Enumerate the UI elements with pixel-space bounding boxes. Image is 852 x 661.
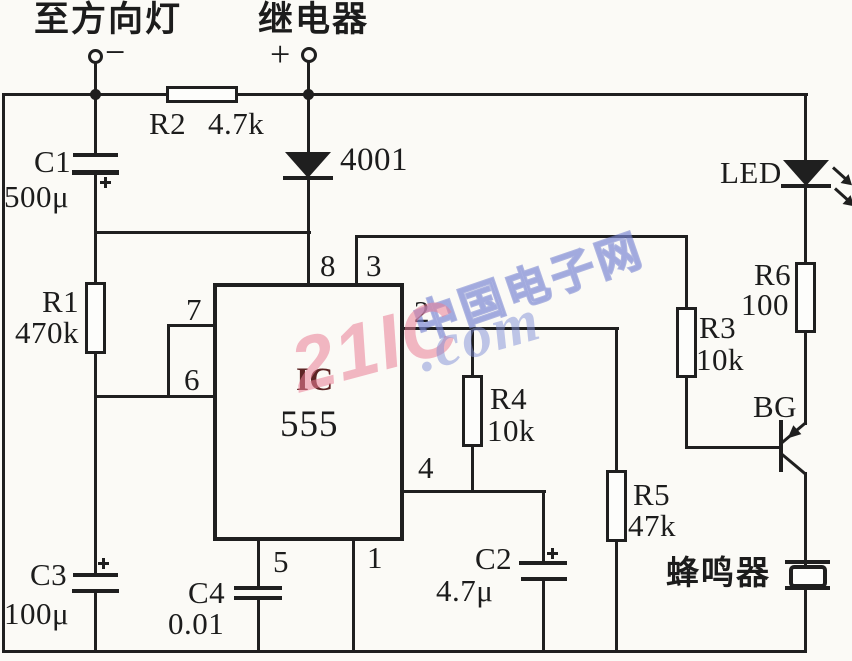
label-diode-4001: 4001 <box>340 144 408 177</box>
diode-4001-triangle <box>285 152 331 178</box>
label-transistor-bg: BG <box>753 391 797 422</box>
label-led: LED <box>720 157 782 188</box>
schematic-canvas: 至方向灯 − 继电器 + R2 4.7k 4001 C1 500μ R1 470… <box>0 0 852 661</box>
led-emission-arrow-1 <box>832 166 847 180</box>
wire-r6-emitter <box>804 331 807 425</box>
wire-base <box>685 446 783 449</box>
wire-r1-bottom-lead <box>94 352 97 397</box>
wire-r5-top-lead <box>615 327 618 472</box>
wire-buzzer-ground <box>804 589 807 652</box>
wire-r1-to-c3 <box>94 395 97 575</box>
pin-label-5: 5 <box>273 546 289 577</box>
wire-led-r6 <box>804 187 807 264</box>
label-r5-ref: R5 <box>633 479 670 510</box>
transistor-collector <box>780 452 806 475</box>
capacitor-c2-plate-top <box>519 561 567 565</box>
pin-label-8: 8 <box>320 250 336 281</box>
transistor-base-bar <box>779 420 783 472</box>
wire-c1-top-lead <box>94 95 97 155</box>
wire-c1-to-diode <box>94 231 311 234</box>
wire-pin5-stub <box>257 540 260 590</box>
relay-label: 继电器 <box>258 2 369 37</box>
wire-left-border <box>2 93 5 653</box>
pin-label-3: 3 <box>366 250 382 281</box>
wire-c2-top-lead <box>542 490 545 563</box>
led-triangle <box>783 160 829 186</box>
capacitor-c1-plate-top <box>73 153 118 157</box>
label-c2-ref: C2 <box>475 543 512 574</box>
label-c3-value: 100μ <box>4 598 69 629</box>
label-r3-value: 10k <box>696 344 744 375</box>
resistor-r2-body <box>166 86 238 103</box>
wire-pin3-stub <box>355 235 358 285</box>
label-r2-value: 4.7k <box>208 108 264 139</box>
minus-polarity-label: − <box>105 34 126 70</box>
wire-top-rail <box>2 93 808 96</box>
diode-4001-cathode-bar <box>283 176 333 180</box>
wire-pin1-ground <box>352 540 355 652</box>
wire-c4-ground <box>257 599 260 652</box>
wire-r3-bottom-lead <box>685 376 688 448</box>
label-c4-value: 0.01 <box>168 608 224 639</box>
wire-pin2 <box>403 327 619 330</box>
label-r4-ref: R4 <box>490 383 527 414</box>
label-c1-ref: C1 <box>34 146 71 177</box>
wire-r4-bottom-lead <box>471 445 474 493</box>
pin-label-6: 6 <box>184 364 200 395</box>
capacitor-c1-plate-bottom <box>72 170 119 175</box>
resistor-r5-body <box>606 470 627 542</box>
label-c1-value: 500μ <box>4 181 69 212</box>
wire-pin7-down <box>167 324 170 398</box>
label-r1-ref: R1 <box>42 286 79 317</box>
buzzer-plate-bottom <box>785 586 830 590</box>
c3-polarity-mark <box>98 558 109 569</box>
wire-bottom-rail <box>2 650 807 653</box>
resistor-r6-body <box>795 262 816 333</box>
label-r5-value: 47k <box>628 510 676 541</box>
pin-label-1: 1 <box>367 542 383 573</box>
buzzer-body <box>789 565 827 588</box>
wire-terminal-plus-stem <box>307 61 310 153</box>
terminal-direction-light <box>88 49 103 64</box>
pin-label-7: 7 <box>186 294 202 325</box>
capacitor-c3-plate-top <box>73 573 118 577</box>
wire-r1-top-lead <box>94 231 97 284</box>
wire-pin4 <box>403 490 546 493</box>
led-cathode-bar <box>781 184 831 188</box>
junction-dot-left <box>90 89 101 100</box>
wire-diode-to-pin8 <box>307 178 310 285</box>
plus-polarity-label: + <box>270 36 291 72</box>
label-c3-ref: C3 <box>30 559 67 590</box>
wire-led-top <box>804 93 807 162</box>
label-r2-ref: R2 <box>149 108 186 139</box>
resistor-r3-body <box>676 307 697 378</box>
capacitor-c4-plate-top <box>234 586 282 590</box>
resistor-r1-body <box>85 282 106 354</box>
pin-label-4: 4 <box>418 452 434 483</box>
wire-c2-ground <box>542 580 545 652</box>
resistor-r4-body <box>462 375 483 447</box>
capacitor-c4-plate-bottom <box>234 596 282 600</box>
wire-pin3-to-r3 <box>355 235 688 238</box>
wire-r5-ground <box>615 541 618 652</box>
wire-r4-top-lead <box>471 327 474 378</box>
pin-label-2: 2 <box>414 296 430 327</box>
label-r1-value: 470k <box>15 317 79 348</box>
c2-polarity-mark <box>547 548 558 559</box>
label-ic-ref: IC <box>296 364 334 397</box>
label-r4-value: 10k <box>487 415 535 446</box>
label-r6-value: 100 <box>741 289 789 320</box>
label-buzzer: 蜂鸣器 <box>666 558 771 591</box>
wire-r3-top-lead <box>685 235 688 309</box>
wire-c3-ground <box>94 592 97 652</box>
led-emission-arrow-2 <box>834 187 849 201</box>
wire-collector-buzzer <box>804 472 807 566</box>
label-r6-ref: R6 <box>754 259 791 290</box>
junction-dot-right <box>303 89 314 100</box>
capacitor-c3-plate-bottom <box>72 589 119 593</box>
wire-c1-bottom-lead <box>94 174 97 234</box>
c1-polarity-mark <box>100 177 111 188</box>
buzzer-plate-top <box>785 560 830 564</box>
label-c2-value: 4.7μ <box>436 575 493 606</box>
label-c4-ref: C4 <box>188 577 225 608</box>
label-ic-value: 555 <box>280 406 339 443</box>
label-r3-ref: R3 <box>699 312 736 343</box>
capacitor-c2-plate-bottom <box>521 577 567 581</box>
terminal-relay <box>301 47 317 63</box>
